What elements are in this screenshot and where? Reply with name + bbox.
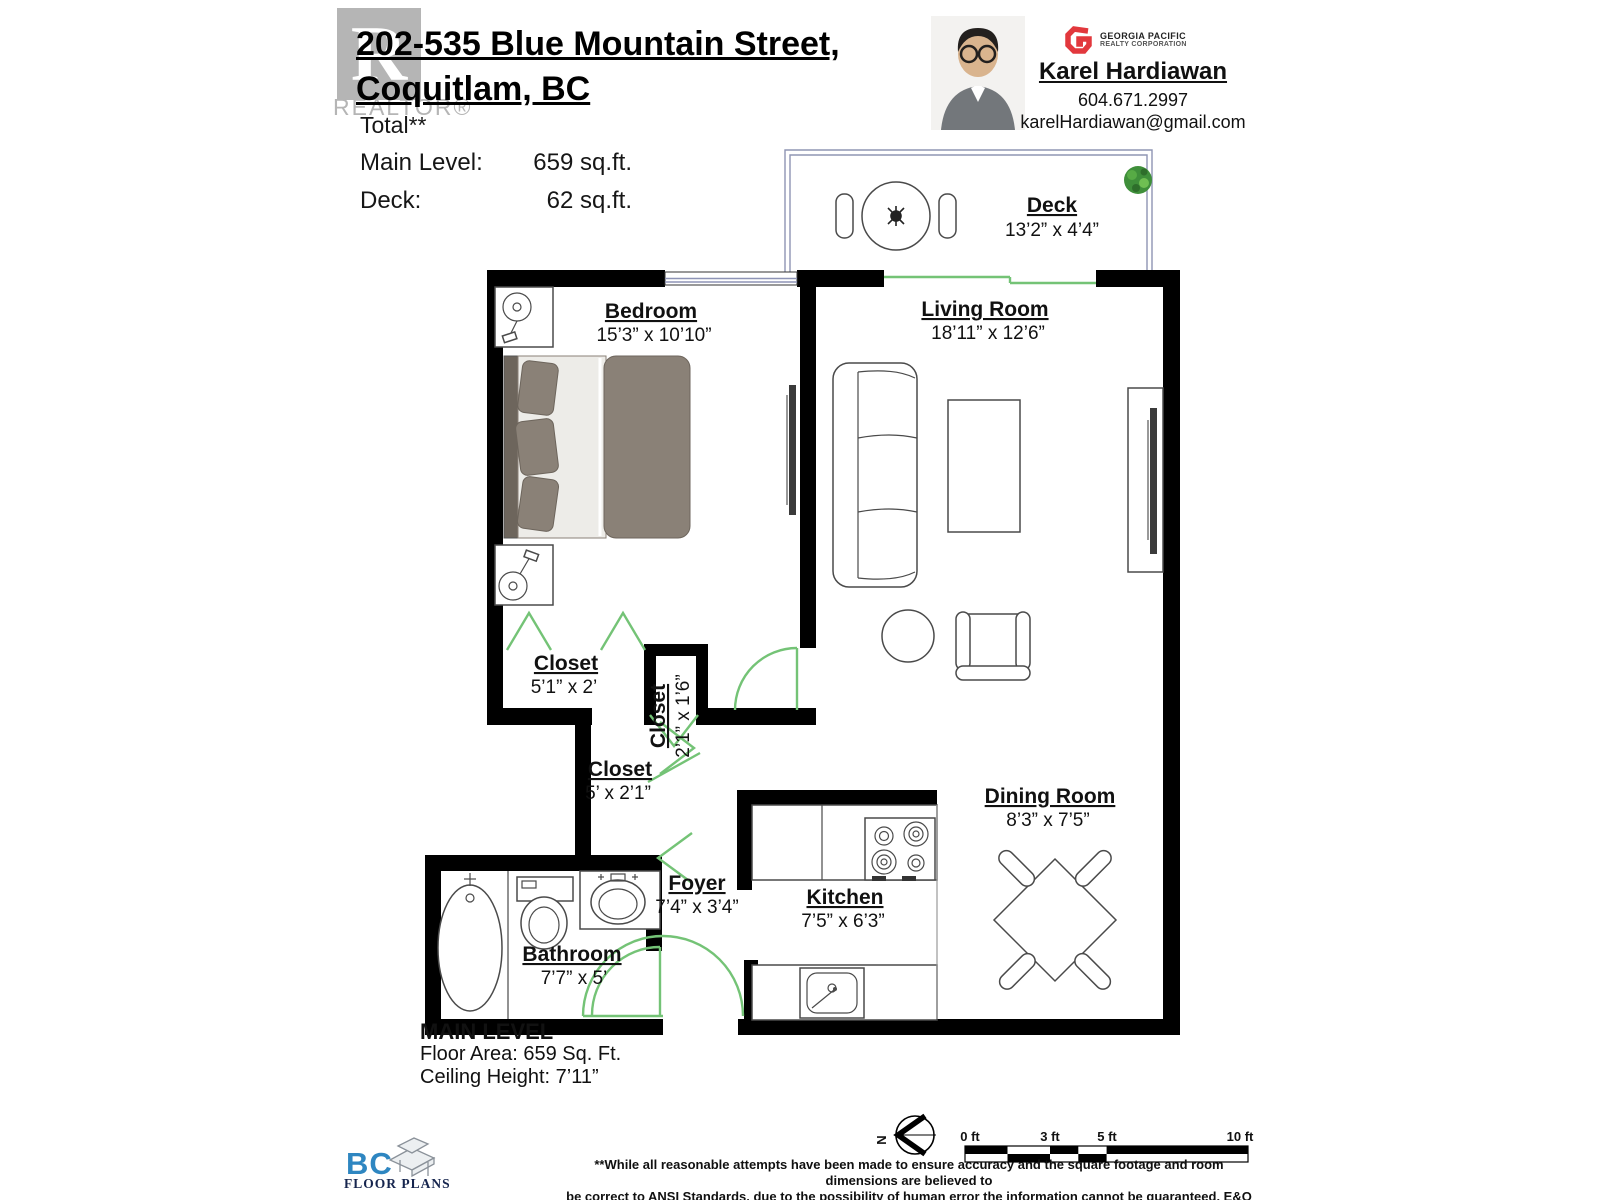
hall-closet-dims: 5’ x 2’1” [585,783,651,804]
bathroom-label: Bathroom [522,943,621,966]
dining-table-set [994,847,1116,992]
toilet [517,877,573,949]
main-level-title: MAIN LEVEL [420,1020,621,1043]
scale-label-10: 10 ft [1227,1129,1254,1144]
bedroom-label: Bedroom [605,300,697,323]
bedroom-closet-label: Closet [534,652,598,675]
kitchen-label: Kitchen [806,886,883,909]
living-tv-console [1128,388,1163,572]
ceiling-height-text: Ceiling Height: 7’11” [420,1066,621,1089]
compass-icon: N [874,1116,936,1154]
scale-label-0: 0 ft [960,1129,980,1144]
disclaimer-line1: **While all reasonable attempts have bee… [558,1157,1260,1189]
foyer-dims: 7’4” x 3’4” [655,897,738,918]
small-closet-label: Closet [647,684,670,748]
sofa [833,363,917,587]
kitchen-dims: 7’5” x 6’3” [801,911,884,932]
scale-label-5: 5 ft [1097,1129,1117,1144]
armchair [956,612,1030,680]
kitchen-sink [800,968,864,1018]
bathroom-sink [580,871,660,929]
coffee-table [948,400,1020,532]
living-room-label: Living Room [921,298,1048,321]
deck-table-set [836,182,956,250]
deck-label: Deck [1027,194,1078,217]
dining-room-label: Dining Room [985,785,1116,808]
bedroom-window [665,272,797,285]
bathroom-dims: 7’7” x 5’ [541,968,608,989]
disclaimer-line2: be correct to ANSI Standards, due to the… [558,1189,1260,1200]
main-level-block: MAIN LEVEL Floor Area: 659 Sq. Ft. Ceili… [420,1020,621,1089]
compass-north-label: N [874,1135,889,1144]
disclaimer: **While all reasonable attempts have bee… [558,1157,1260,1200]
bathtub [438,871,508,1019]
deck-dims: 13’2” x 4’4” [1005,220,1099,241]
living-room-dims: 18’11” x 12’6” [931,323,1045,344]
scale-label-3: 3 ft [1040,1129,1060,1144]
bedroom-nightstand-top [495,287,553,347]
bed [504,356,690,538]
floor-area-text: Floor Area: 659 Sq. Ft. [420,1043,621,1066]
small-closet-dims: 2’1” x 1’6” [673,674,694,757]
floorplan-page: R REALTOR® 202-535 Blue Mountain Street,… [0,0,1600,1200]
living-side-table [882,610,934,662]
bedroom-tv [787,385,796,515]
bc-logo-floor-plans: FLOOR PLANS [344,1176,451,1192]
bedroom-closet-dims: 5’1” x 2’ [531,677,598,698]
bc-logo-sketch [390,1138,434,1176]
sliding-door [884,277,1096,283]
deck-plant [1124,166,1152,194]
bedroom-dims: 15’3” x 10’10” [596,325,711,346]
floorplan-drawing: Deck 13’2” x 4’4” Bedroom 15’3” x 10’10”… [0,0,1600,1200]
bedroom-closet-doors [507,613,645,650]
foyer-label: Foyer [668,872,725,895]
bedroom-door [735,648,797,710]
bedroom-nightstand-bottom [495,545,553,605]
dining-room-dims: 8’3” x 7’5” [1006,810,1089,831]
stove [865,818,935,881]
hall-closet-label: Closet [588,758,652,781]
